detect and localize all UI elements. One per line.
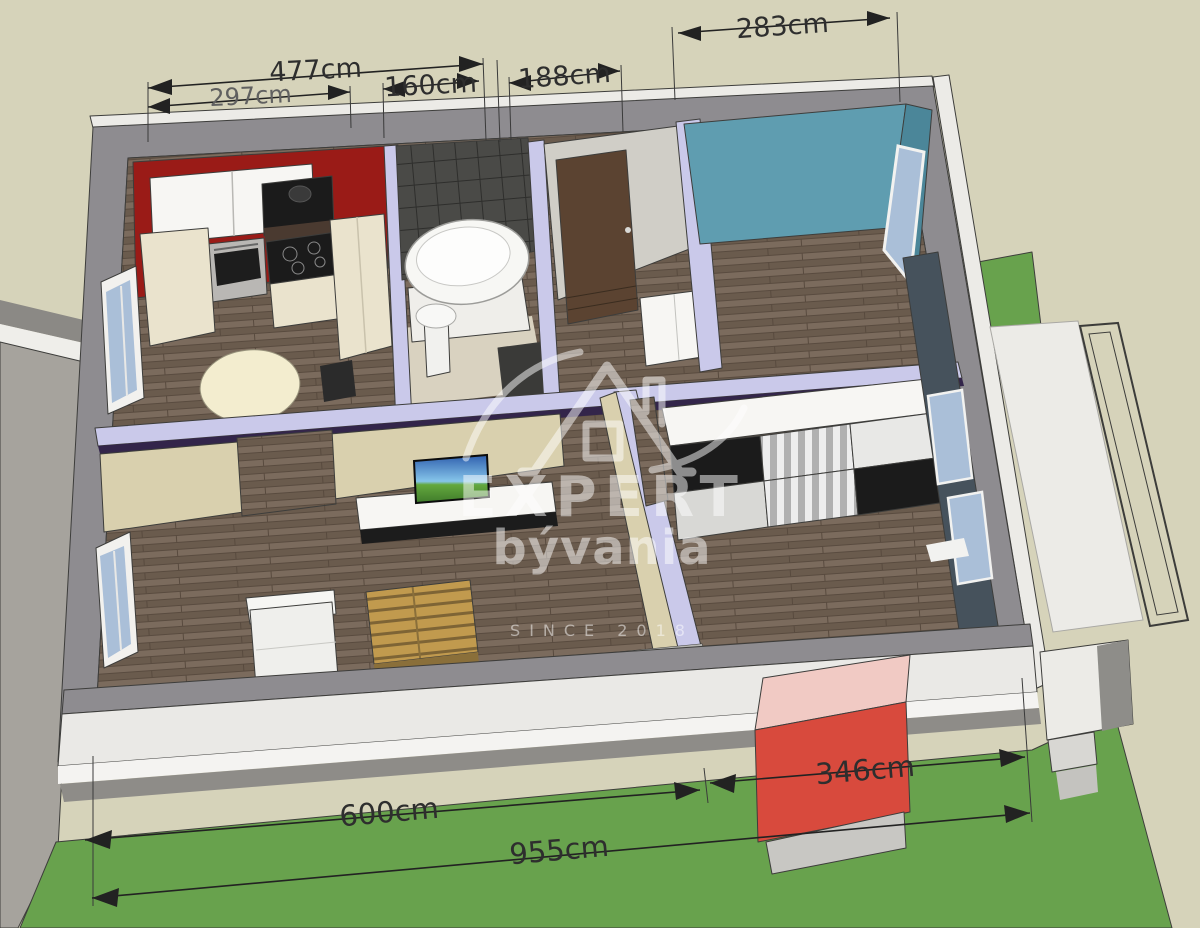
watermark-since: SINCE 2018 [510,621,694,640]
terrace-box-side [1097,640,1133,731]
kitchen-chair [320,360,356,402]
floorplan-render: 477cm 297cm 160cm 188cm 283cm 600cm [0,0,1200,928]
kitchen-counter [270,274,344,328]
dim-label-283: 283cm [735,8,830,45]
dim-label-188: 188cm [517,58,612,95]
door-handle [625,227,631,233]
dimension-160: 160cm [383,68,479,104]
dim-label-297: 297cm [209,80,293,112]
sink-basin [416,304,456,328]
dim-label-160: 160cm [383,68,477,104]
pallet-table [366,580,478,664]
watermark-name: bývania [492,520,711,576]
kitchen-doorway [237,430,336,516]
kitchen-base-cabinets [140,228,215,346]
floorplan-svg: 477cm 297cm 160cm 188cm 283cm 600cm [0,0,1200,928]
hood-duct [289,186,311,202]
blue-bedroom-wall [684,104,906,244]
